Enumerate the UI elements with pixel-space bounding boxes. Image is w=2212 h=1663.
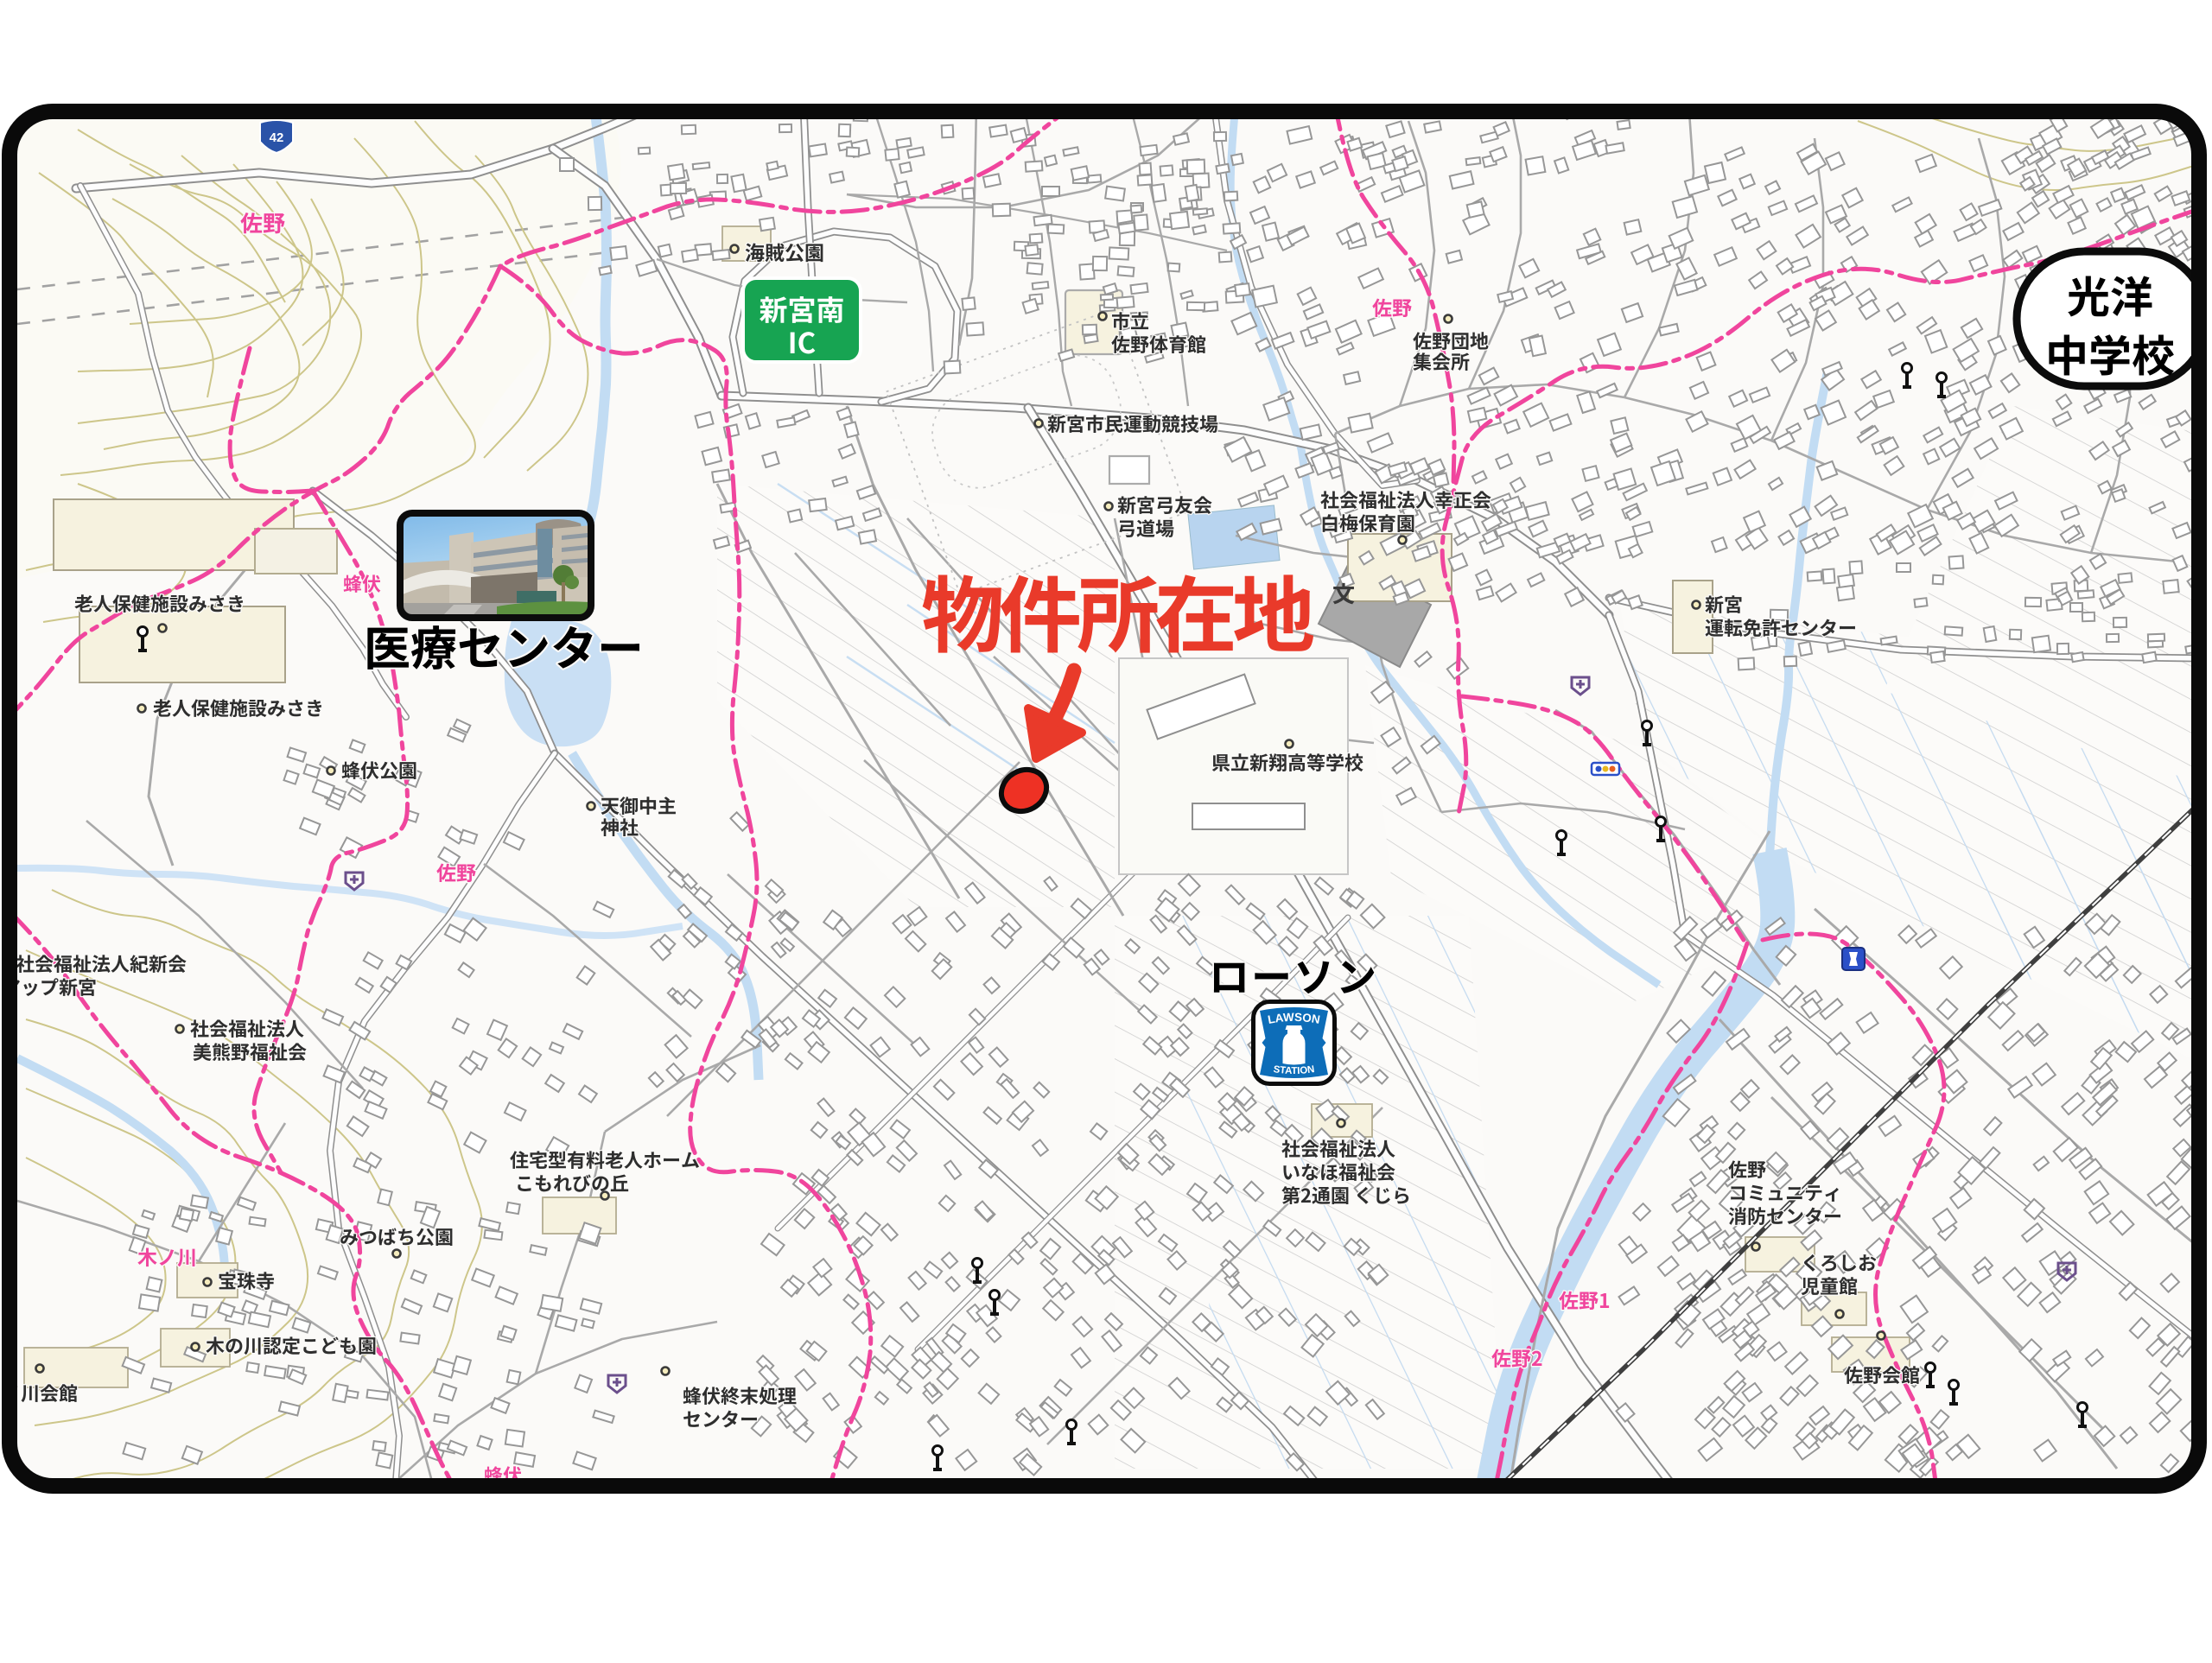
svg-text:42: 42 (270, 130, 284, 145)
svg-text:STATION: STATION (1273, 1064, 1315, 1076)
